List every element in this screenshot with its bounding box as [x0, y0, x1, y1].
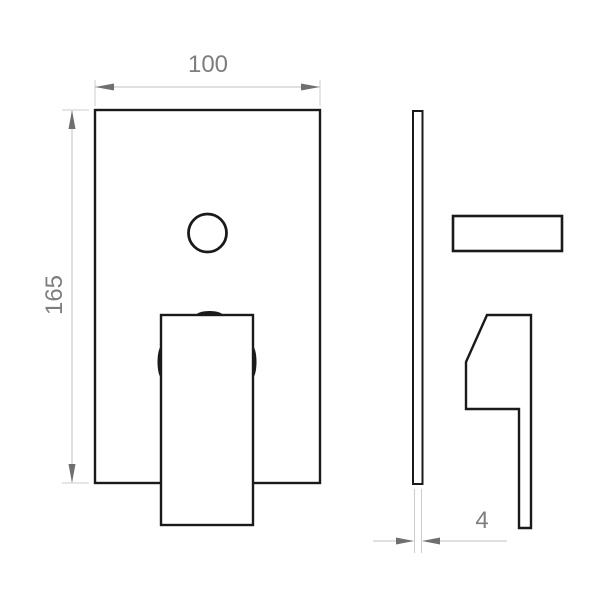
width-dimension: 100 [95, 51, 320, 106]
width-arrow-left-icon [95, 84, 114, 91]
technical-drawing-canvas: 100 165 4 [0, 0, 600, 600]
side-knob-profile [453, 216, 562, 251]
thickness-dimension: 4 [373, 489, 507, 553]
height-dimension-label: 165 [41, 275, 68, 315]
side-plate-profile [413, 111, 423, 484]
width-dimension-label: 100 [188, 51, 228, 78]
drawing-page: 100 165 4 [0, 0, 600, 600]
thickness-arrow-right-icon [422, 538, 440, 545]
diverter-button-circle [189, 214, 227, 252]
thickness-arrow-left-icon [396, 538, 414, 545]
width-arrow-right-icon [301, 84, 320, 91]
side-lever-profile [466, 315, 531, 528]
side-view [413, 111, 562, 528]
handle-front-outline [161, 315, 253, 525]
front-view [95, 110, 320, 525]
height-arrow-top-icon [69, 110, 76, 129]
thickness-dimension-label: 4 [475, 507, 488, 534]
height-arrow-bottom-icon [69, 464, 76, 483]
height-dimension: 165 [41, 110, 89, 483]
